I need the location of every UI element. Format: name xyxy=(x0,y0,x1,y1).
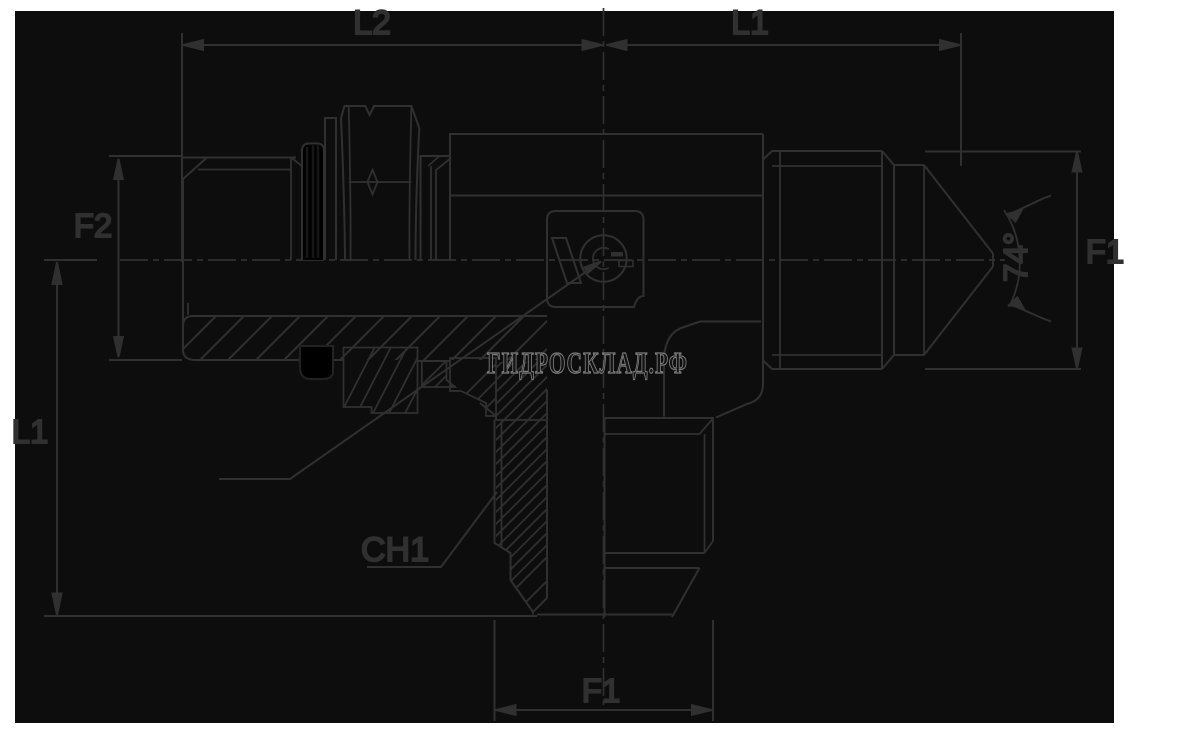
svg-text:F1: F1 xyxy=(582,672,621,709)
svg-text:F1: F1 xyxy=(1086,233,1125,270)
svg-text:L2: L2 xyxy=(353,4,391,42)
svg-text:L1: L1 xyxy=(12,413,49,450)
svg-text:L1: L1 xyxy=(731,4,769,42)
svg-text:74°: 74° xyxy=(997,232,1034,282)
svg-text:F2: F2 xyxy=(74,207,113,244)
svg-text:ГИДРОСКЛАД.РФ: ГИДРОСКЛАД.РФ xyxy=(487,345,688,380)
svg-text:CH1: CH1 xyxy=(361,531,429,569)
